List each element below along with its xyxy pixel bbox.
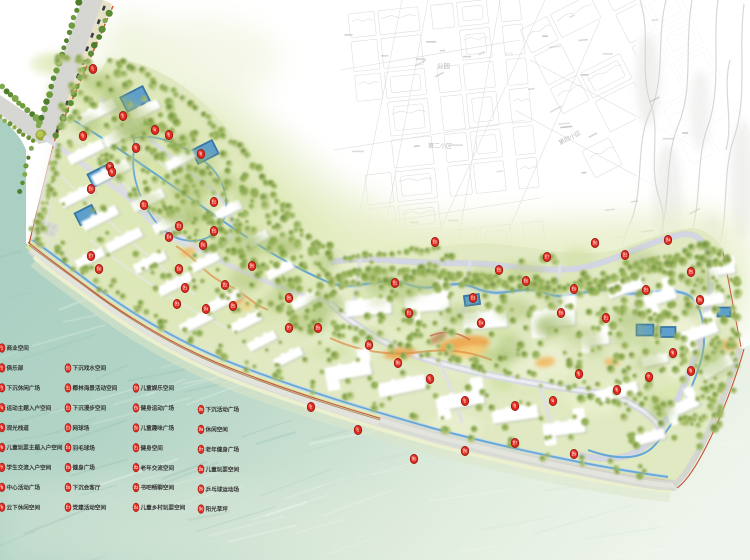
- svg-text:老年健身广场: 老年健身广场: [205, 446, 240, 454]
- svg-text:29: 29: [572, 452, 577, 457]
- svg-text:椰林海景活动空间: 椰林海景活动空间: [73, 384, 118, 392]
- svg-text:13: 13: [66, 425, 71, 430]
- svg-text:22: 22: [223, 283, 228, 288]
- svg-text:23: 23: [175, 302, 180, 307]
- svg-text:下沉戏水空间: 下沉戏水空间: [73, 364, 107, 372]
- svg-text:18: 18: [97, 267, 102, 272]
- svg-text:11: 11: [66, 386, 71, 391]
- svg-text:13: 13: [177, 224, 182, 229]
- svg-text:10: 10: [433, 240, 438, 245]
- svg-text:党建活动空间: 党建活动空间: [72, 504, 107, 512]
- svg-text:11: 11: [393, 281, 398, 286]
- svg-text:25: 25: [689, 270, 694, 275]
- svg-text:28: 28: [316, 326, 321, 331]
- svg-text:12: 12: [407, 311, 412, 316]
- svg-text:20: 20: [134, 425, 139, 430]
- svg-text:下沉漫步空间: 下沉漫步空间: [73, 404, 107, 412]
- svg-text:24: 24: [134, 505, 139, 510]
- svg-text:运动主题入户空间: 运动主题入户空间: [7, 404, 52, 412]
- svg-text:30: 30: [412, 457, 417, 462]
- svg-text:16: 16: [201, 243, 206, 248]
- svg-text:17: 17: [89, 254, 94, 259]
- svg-text:商业空间: 商业空间: [7, 344, 30, 352]
- svg-text:22: 22: [623, 253, 628, 258]
- svg-text:21: 21: [183, 286, 188, 291]
- svg-text:俱乐部: 俱乐部: [6, 364, 24, 372]
- svg-text:19: 19: [134, 406, 139, 411]
- svg-text:观光栈道: 观光栈道: [7, 424, 30, 432]
- svg-text:羽毛球场: 羽毛球场: [73, 444, 96, 452]
- svg-text:23: 23: [644, 288, 649, 293]
- svg-text:云下休闲空间: 云下休闲空间: [7, 503, 41, 511]
- svg-text:儿童娱乐空间: 儿童娱乐空间: [140, 384, 175, 392]
- svg-text:18: 18: [559, 311, 564, 316]
- svg-text:13: 13: [471, 296, 476, 301]
- svg-text:健身运动广场: 健身运动广场: [141, 404, 175, 412]
- svg-text:儿童趣味广场: 儿童趣味广场: [140, 424, 175, 432]
- svg-text:14: 14: [167, 235, 172, 240]
- svg-text:下沉会客厅: 下沉会客厅: [73, 484, 101, 492]
- svg-text:10: 10: [89, 187, 94, 192]
- svg-text:网球场: 网球场: [73, 424, 90, 432]
- svg-text:16: 16: [66, 485, 71, 490]
- svg-text:24: 24: [666, 238, 671, 243]
- svg-text:下沉活动广场: 下沉活动广场: [206, 406, 240, 414]
- svg-text:28: 28: [463, 449, 468, 454]
- svg-text:17: 17: [66, 505, 71, 510]
- svg-text:15: 15: [212, 229, 217, 234]
- svg-text:27: 27: [199, 447, 204, 452]
- svg-text:27: 27: [287, 326, 292, 331]
- svg-text:22: 22: [134, 465, 139, 470]
- svg-text:10: 10: [66, 366, 71, 371]
- svg-text:30: 30: [396, 361, 401, 366]
- svg-text:20: 20: [250, 264, 255, 269]
- svg-text:25: 25: [231, 304, 236, 309]
- svg-text:健身空间: 健身空间: [141, 444, 164, 452]
- svg-text:健身广场: 健身广场: [73, 464, 96, 472]
- svg-text:休闲空间: 休闲空间: [205, 426, 229, 434]
- svg-text:18: 18: [134, 386, 139, 391]
- svg-text:14: 14: [479, 321, 484, 326]
- svg-text:14: 14: [66, 445, 71, 450]
- svg-text:15: 15: [497, 268, 502, 273]
- svg-text:26: 26: [287, 296, 292, 301]
- svg-text:12: 12: [66, 405, 71, 410]
- svg-text:12: 12: [212, 200, 217, 205]
- svg-text:19: 19: [572, 287, 577, 292]
- svg-text:儿童乡村玩耍空间: 儿童乡村玩耍空间: [140, 504, 186, 512]
- svg-text:29: 29: [367, 343, 372, 348]
- svg-text:中心活动广场: 中心活动广场: [7, 484, 41, 492]
- svg-text:26: 26: [698, 298, 703, 303]
- svg-text:15: 15: [66, 465, 71, 470]
- svg-text:27: 27: [513, 441, 518, 446]
- svg-text:20: 20: [593, 241, 598, 246]
- svg-text:21: 21: [134, 445, 139, 450]
- svg-text:25: 25: [199, 407, 204, 412]
- svg-text:儿童玩耍主题入户空间: 儿童玩耍主题入户空间: [6, 444, 63, 452]
- svg-text:21: 21: [604, 316, 609, 321]
- svg-text:16: 16: [524, 279, 529, 284]
- svg-text:下沉休闲广场: 下沉休闲广场: [7, 384, 41, 392]
- svg-text:30: 30: [199, 507, 204, 512]
- svg-text:11: 11: [142, 203, 147, 208]
- svg-text:书吧畅聊空间: 书吧畅聊空间: [141, 484, 175, 492]
- svg-text:老年交流空间: 老年交流空间: [140, 464, 175, 472]
- svg-text:28: 28: [199, 467, 204, 472]
- svg-text:乒乓球运动场: 乒乓球运动场: [206, 485, 240, 493]
- svg-text:26: 26: [199, 427, 204, 432]
- svg-text:学生交流入户空间: 学生交流入户空间: [7, 464, 52, 472]
- svg-text:29: 29: [199, 487, 204, 492]
- svg-text:23: 23: [134, 485, 139, 490]
- svg-text:24: 24: [204, 307, 209, 312]
- svg-text:儿童玩耍空间: 儿童玩耍空间: [205, 465, 240, 473]
- svg-text:阳光草坪: 阳光草坪: [206, 505, 229, 513]
- svg-text:19: 19: [177, 267, 182, 272]
- svg-text:17: 17: [545, 255, 550, 260]
